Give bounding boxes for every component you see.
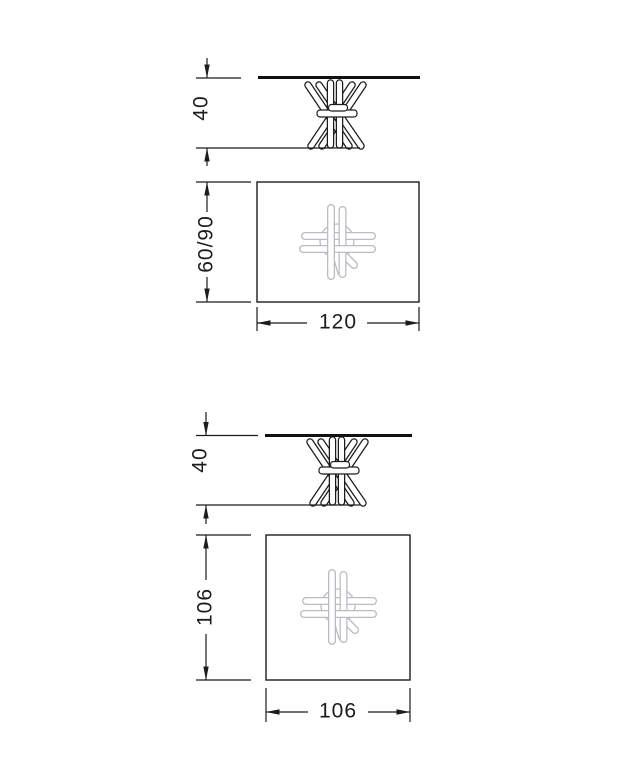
arrowhead-down-icon <box>203 667 208 681</box>
table-base-side-view <box>310 440 365 503</box>
elevation-view-1 <box>258 78 420 147</box>
technical-drawing-canvas: 40 60/90 120 <box>0 0 622 770</box>
depth-dim-label-2: 106 <box>194 588 217 626</box>
arrowhead-right-icon <box>397 709 411 714</box>
drawing-square-table: 40 106 106 <box>189 412 413 723</box>
drawing-rectangular-table: 40 60/90 120 <box>190 58 421 334</box>
arrowhead-up-icon <box>204 182 209 196</box>
height-dim-label-2: 40 <box>189 447 212 472</box>
width-dimension-2: 106 <box>266 688 410 723</box>
arrowhead-up-icon <box>204 148 209 162</box>
arrowhead-left-icon <box>266 709 280 714</box>
arrowhead-up-icon <box>203 535 208 549</box>
table-base-side-view <box>308 83 363 146</box>
arrowhead-down-icon <box>204 65 209 79</box>
table-dimension-drawing: 40 60/90 120 <box>0 0 622 770</box>
height-dim-label-1: 40 <box>190 95 213 120</box>
arrowhead-up-icon <box>203 505 208 519</box>
plan-view-2 <box>266 535 410 680</box>
plan-view-1 <box>257 182 419 302</box>
arrowhead-right-icon <box>406 320 420 325</box>
depth-dimension-2: 106 <box>194 535 252 680</box>
arrowhead-left-icon <box>257 320 271 325</box>
width-dim-label-1: 120 <box>319 311 357 334</box>
width-dim-label-2: 106 <box>319 700 357 723</box>
depth-dimension-1: 60/90 <box>195 182 252 302</box>
arrowhead-down-icon <box>203 422 208 436</box>
width-dimension-1: 120 <box>257 307 419 334</box>
elevation-view-2 <box>265 436 412 504</box>
arrowhead-down-icon <box>204 289 209 303</box>
depth-dim-label-1: 60/90 <box>195 215 218 273</box>
